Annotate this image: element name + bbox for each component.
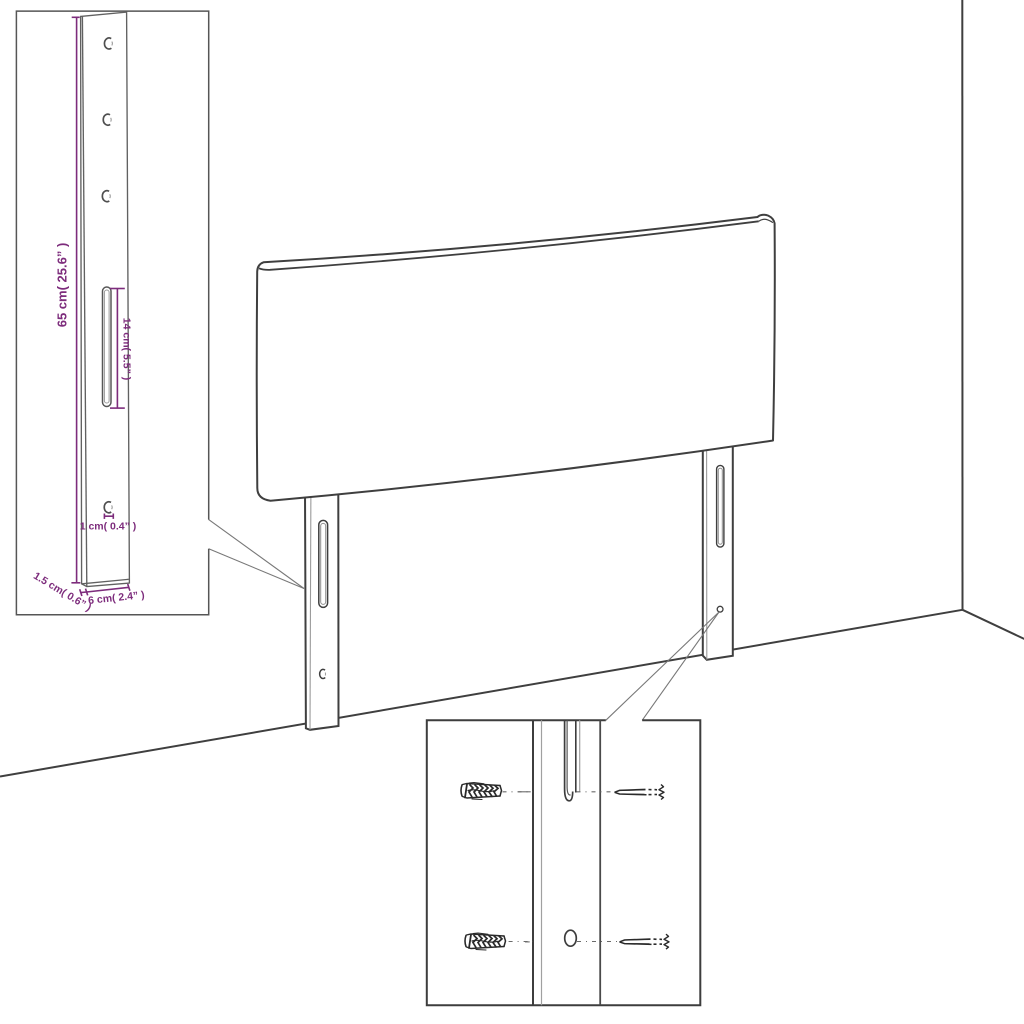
svg-text:14 cm( 5.5” ): 14 cm( 5.5” ) (121, 318, 133, 380)
svg-text:6 cm( 2.4” ): 6 cm( 2.4” ) (88, 589, 146, 607)
svg-text:65 cm( 25.6” ): 65 cm( 25.6” ) (55, 243, 70, 328)
svg-text:1 cm( 0.4” ): 1 cm( 0.4” ) (80, 521, 137, 533)
